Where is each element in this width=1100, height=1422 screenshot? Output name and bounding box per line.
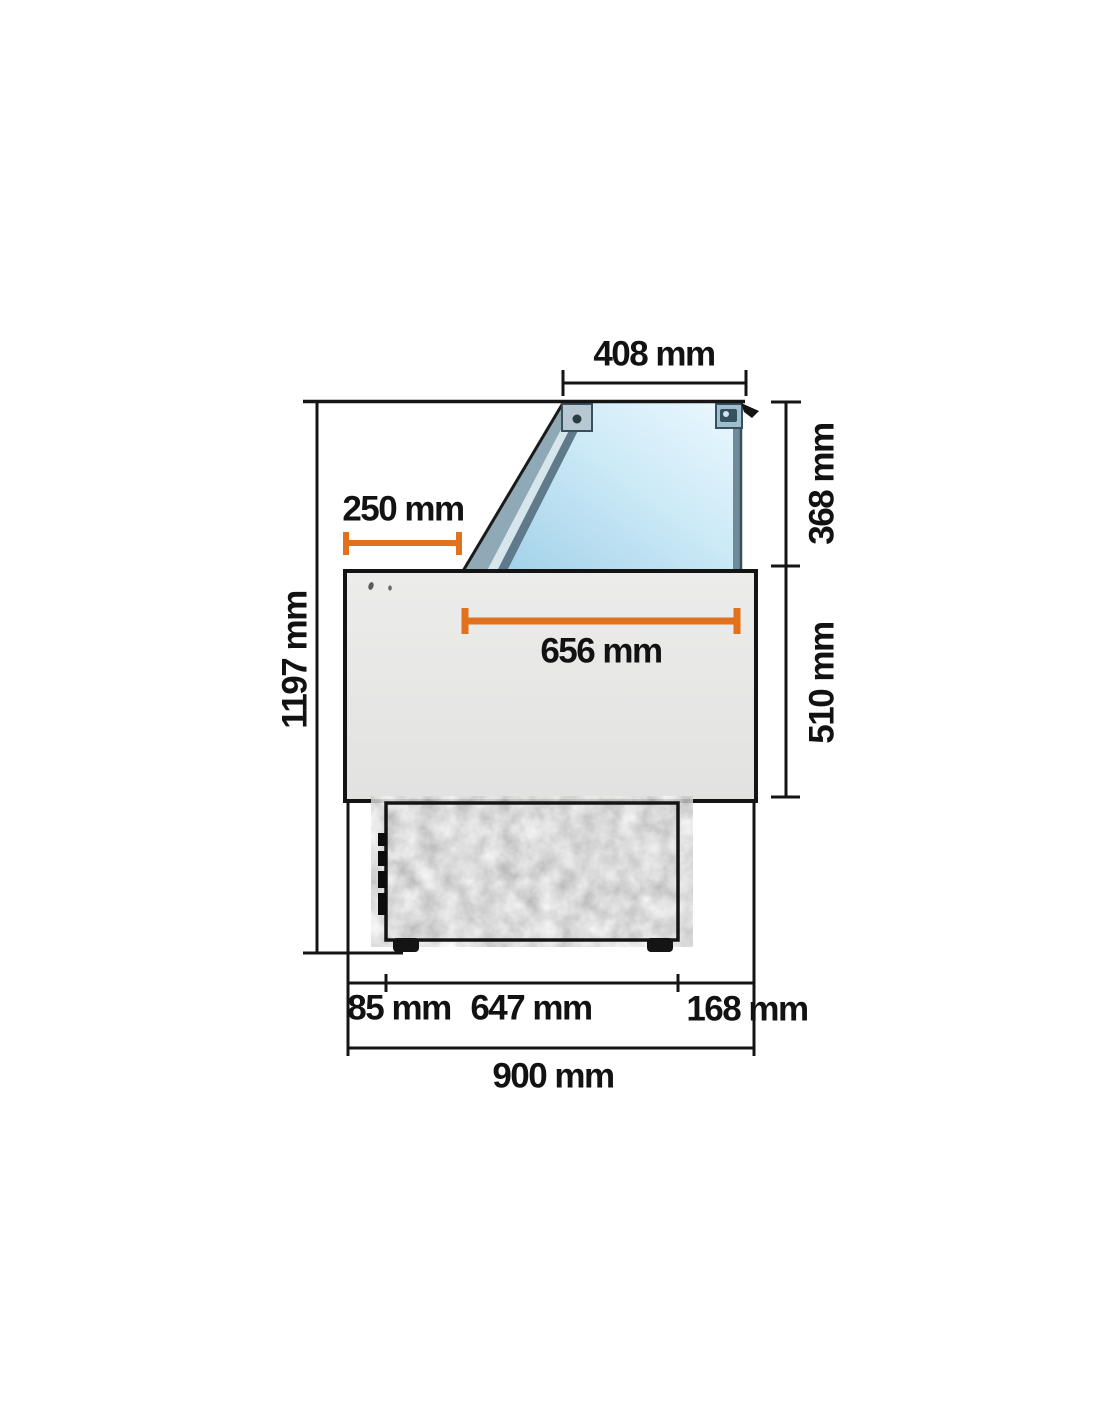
base-texture xyxy=(386,803,678,940)
front-foot xyxy=(393,938,419,952)
dim-label-display-well-width: 656 mm xyxy=(540,634,661,669)
rear-foot xyxy=(647,938,673,952)
drawing-canvas xyxy=(0,0,1100,1422)
compressor-base xyxy=(378,803,678,952)
base-left-tab-3 xyxy=(378,871,387,888)
dim-label-base-depth: 647 mm xyxy=(470,991,591,1026)
dim-label-overall-depth: 900 mm xyxy=(492,1059,613,1094)
dim-label-glass-overhang: 250 mm xyxy=(342,492,463,527)
base-left-tab-2 xyxy=(378,851,387,866)
dim-label-glass-section-height: 368 mm xyxy=(805,423,840,544)
dim-label-base-front-offset: 85 mm xyxy=(347,991,450,1026)
base-left-tab-4 xyxy=(378,893,387,915)
latch-knob-highlight xyxy=(723,411,729,417)
dim-label-top-glass-width: 408 mm xyxy=(593,337,714,372)
panel-mark-2 xyxy=(388,585,392,590)
rear-hook-detail xyxy=(741,403,759,418)
dim-label-overall-height: 1197 mm xyxy=(278,591,313,728)
cabinet-body-panel xyxy=(345,571,756,801)
base-left-tab-1 xyxy=(378,833,387,846)
hinge-pin-icon xyxy=(573,415,582,424)
cabinet-body xyxy=(345,571,756,801)
dim-label-body-section-height: 510 mm xyxy=(805,622,840,743)
dimension-diagram: 408 mm 250 mm 656 mm 368 mm 510 mm 1197 … xyxy=(0,0,1100,1422)
dim-label-base-rear-offset: 168 mm xyxy=(686,992,807,1027)
